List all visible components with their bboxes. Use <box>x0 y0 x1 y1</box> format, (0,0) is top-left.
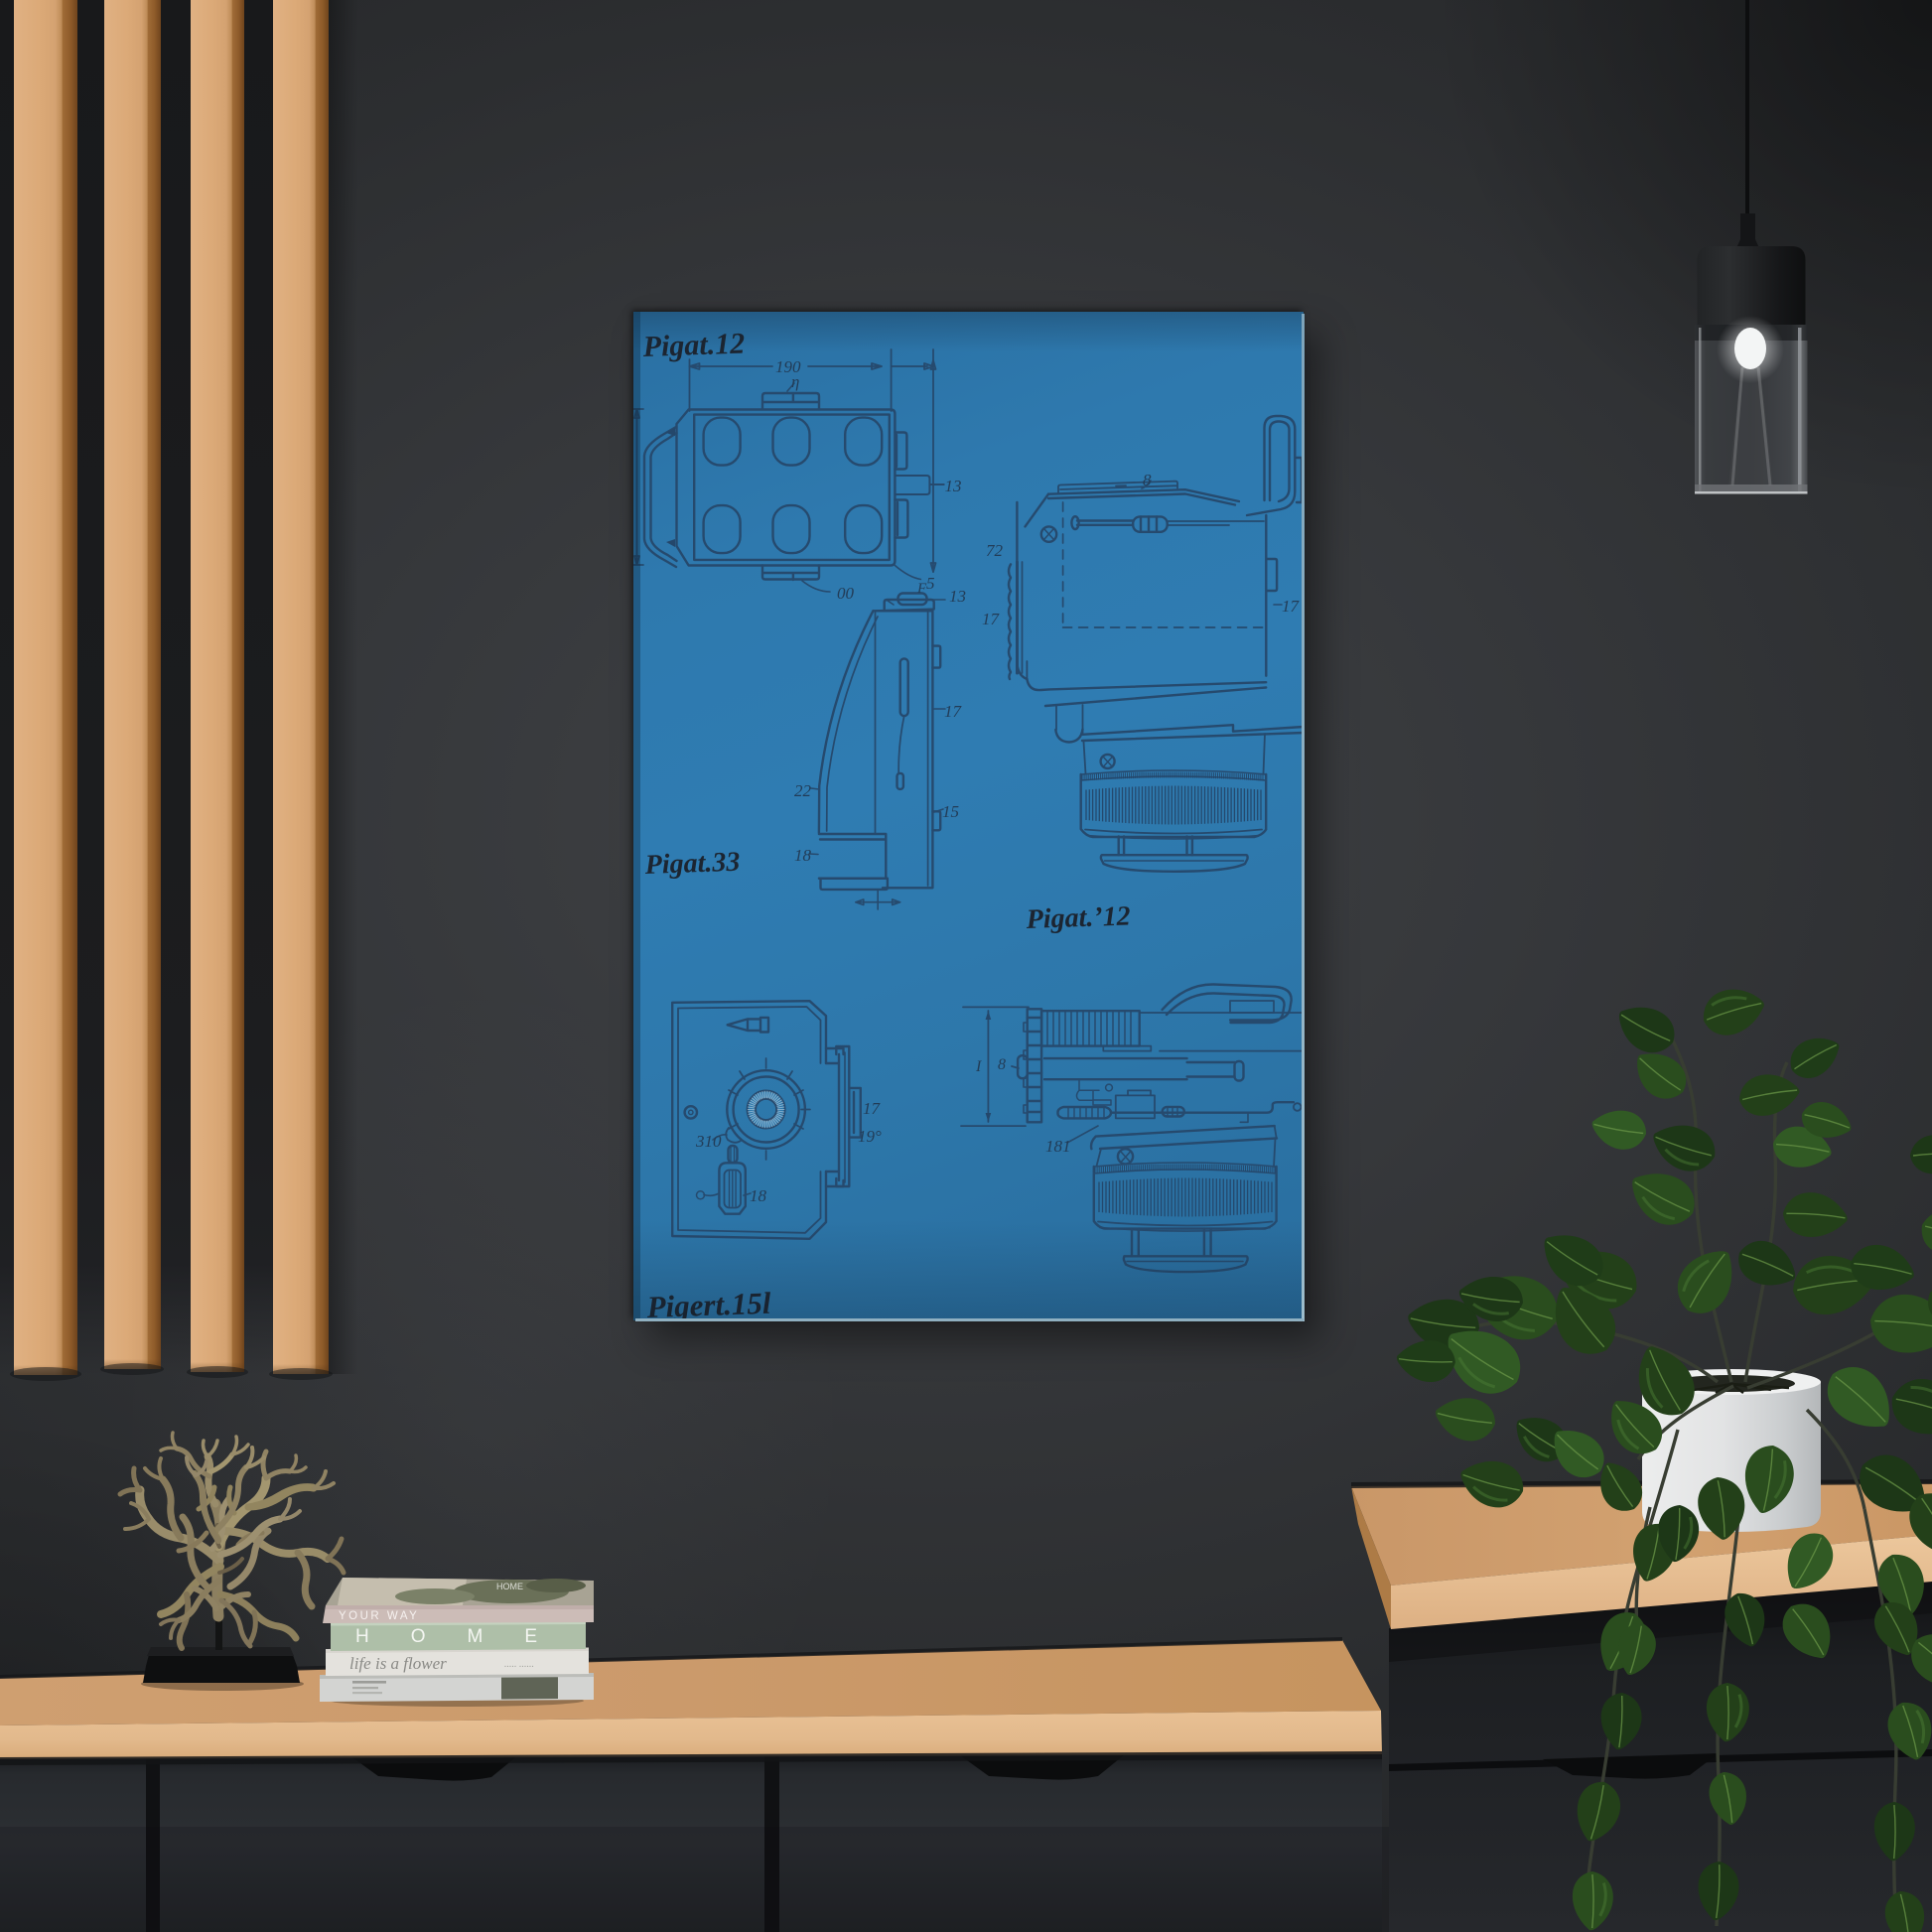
svg-text:life is a flower: life is a flower <box>349 1654 447 1673</box>
svg-text:..... ......: ..... ...... <box>504 1659 534 1670</box>
svg-text:HOME: HOME <box>496 1582 523 1591</box>
svg-text:YOUR WAY: YOUR WAY <box>339 1610 419 1622</box>
svg-text:HOME: HOME <box>355 1626 579 1647</box>
